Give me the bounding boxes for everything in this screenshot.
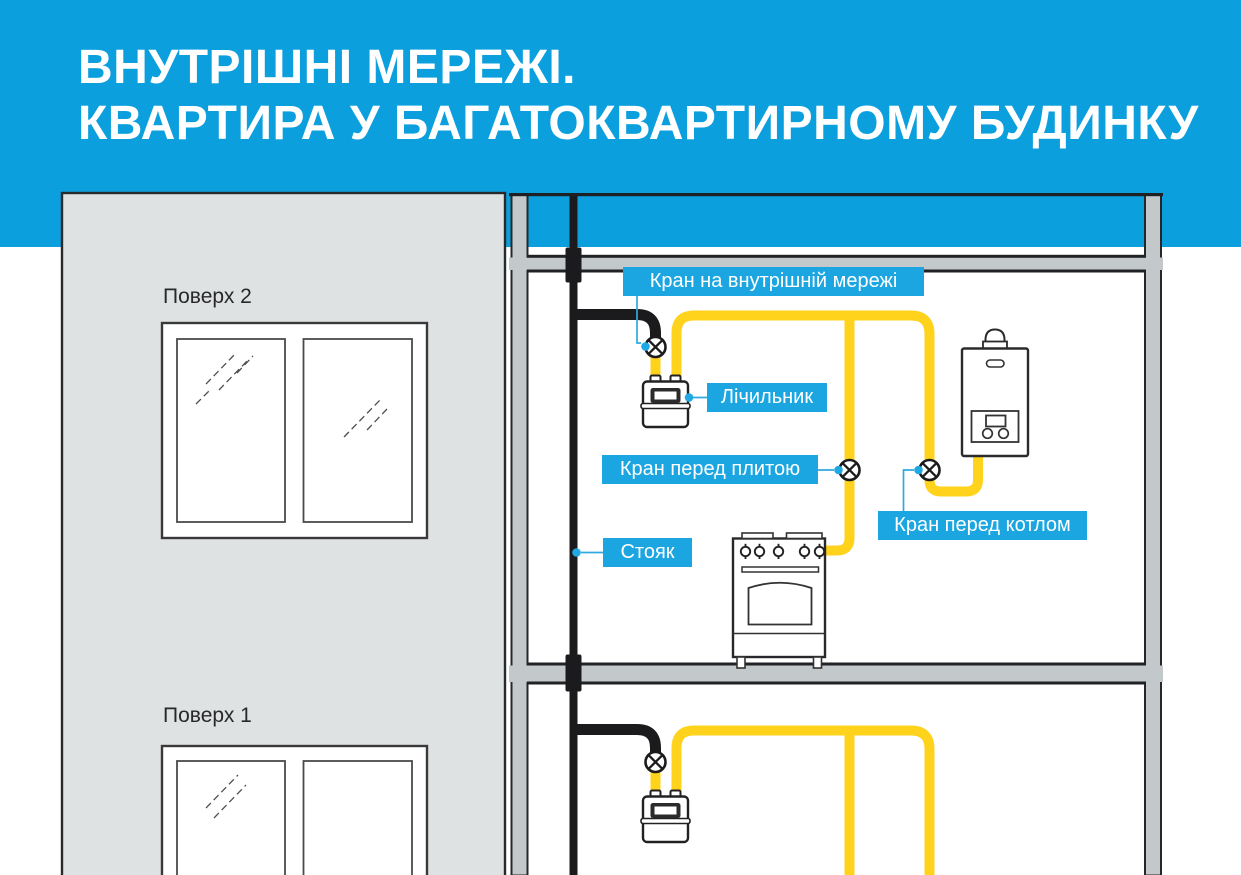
leader-dot bbox=[572, 548, 581, 557]
callout-network-valve: Кран на внутрішній мережі bbox=[623, 267, 924, 296]
riser-sleeve bbox=[566, 655, 582, 692]
infographic-internal-gas-networks: ВНУТРІШНІ МЕРЕЖІ. КВАРТИРА У БАГАТОКВАРТ… bbox=[0, 0, 1241, 875]
gas-riser-pipe bbox=[566, 196, 582, 875]
floor1-network-valve-icon bbox=[646, 752, 666, 772]
floor2-window bbox=[162, 323, 427, 538]
floor1-window bbox=[162, 746, 427, 875]
leader-dot bbox=[685, 393, 694, 402]
floor1-ceiling-slab bbox=[509, 663, 1163, 685]
callout-riser: Стояк bbox=[603, 538, 692, 567]
floor2-label: Поверх 2 bbox=[163, 285, 252, 309]
page-title: ВНУТРІШНІ МЕРЕЖІ. КВАРТИРА У БАГАТОКВАРТ… bbox=[78, 40, 1218, 152]
page-title-line2: КВАРТИРА У БАГАТОКВАРТИРНОМУ БУДИНКУ bbox=[78, 96, 1218, 152]
interior-left-wall bbox=[512, 195, 528, 875]
floor1-branch-pipe bbox=[574, 730, 656, 756]
gas-meter-floor2 bbox=[641, 376, 690, 428]
page-title-line1: ВНУТРІШНІ МЕРЕЖІ. bbox=[78, 40, 1218, 96]
callout-meter: Лічильник bbox=[707, 383, 827, 412]
main-apartment-pipe bbox=[677, 731, 930, 875]
interior-right-wall bbox=[1145, 195, 1161, 875]
callout-leaders bbox=[581, 296, 914, 553]
leader-dot bbox=[641, 342, 650, 351]
callout-boiler-valve: Кран перед котлом bbox=[878, 511, 1087, 540]
gas-stove bbox=[733, 533, 825, 668]
gas-boiler bbox=[962, 330, 1028, 457]
riser-sleeve bbox=[566, 248, 582, 283]
stove-supply-pipe bbox=[823, 316, 850, 551]
callout-dots bbox=[572, 342, 923, 557]
floor1-gas-pipes bbox=[656, 731, 930, 875]
leader-line bbox=[904, 470, 915, 511]
building-top-line bbox=[509, 193, 1163, 196]
callout-stove-valve: Кран перед плитою bbox=[602, 455, 818, 484]
gas-meter-floor1 bbox=[641, 791, 690, 843]
floor1-label: Поверх 1 bbox=[163, 704, 252, 728]
leader-dot bbox=[834, 466, 843, 475]
floor2-branch-pipe bbox=[574, 315, 656, 342]
leader-dot bbox=[914, 466, 923, 475]
